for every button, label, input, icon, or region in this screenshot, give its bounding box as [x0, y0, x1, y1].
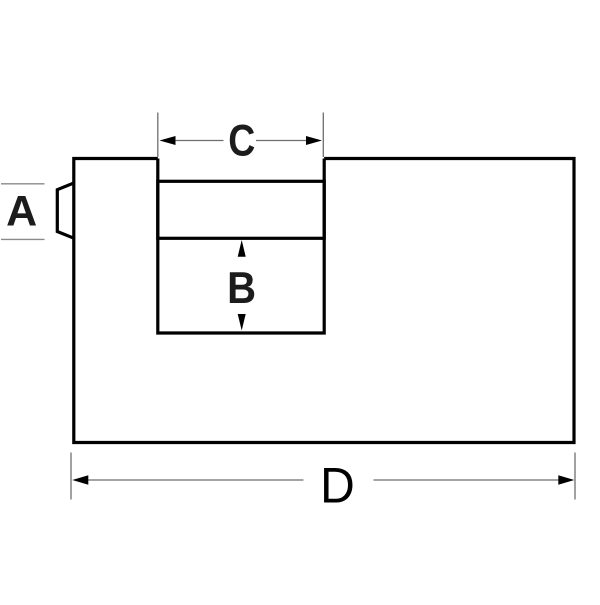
svg-text:B: B: [227, 263, 256, 312]
svg-text:D: D: [320, 458, 355, 514]
svg-text:A: A: [6, 188, 37, 236]
svg-text:C: C: [228, 116, 255, 166]
